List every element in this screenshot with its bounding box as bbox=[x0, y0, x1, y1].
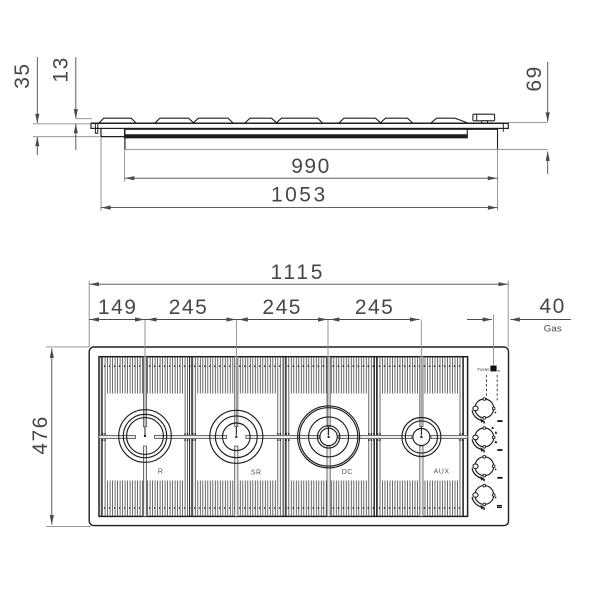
svg-text:AUX: AUX bbox=[434, 468, 450, 475]
svg-text:13: 13 bbox=[50, 56, 73, 82]
svg-text:245: 245 bbox=[169, 296, 209, 319]
svg-text:Foster: Foster bbox=[477, 367, 490, 372]
svg-text:476: 476 bbox=[29, 415, 52, 455]
svg-text:245: 245 bbox=[355, 296, 395, 319]
svg-text:1053: 1053 bbox=[271, 183, 328, 206]
svg-text:149: 149 bbox=[98, 296, 138, 319]
svg-text:Gas: Gas bbox=[544, 324, 562, 335]
svg-text:R: R bbox=[158, 468, 164, 475]
svg-text:69: 69 bbox=[523, 65, 546, 91]
svg-text:40: 40 bbox=[539, 295, 565, 318]
svg-text:SR: SR bbox=[251, 469, 262, 476]
svg-text:1115: 1115 bbox=[270, 261, 325, 284]
svg-text:245: 245 bbox=[262, 296, 302, 319]
svg-text:DC: DC bbox=[342, 469, 353, 476]
svg-text:990: 990 bbox=[291, 155, 331, 178]
svg-text:35: 35 bbox=[11, 62, 34, 88]
